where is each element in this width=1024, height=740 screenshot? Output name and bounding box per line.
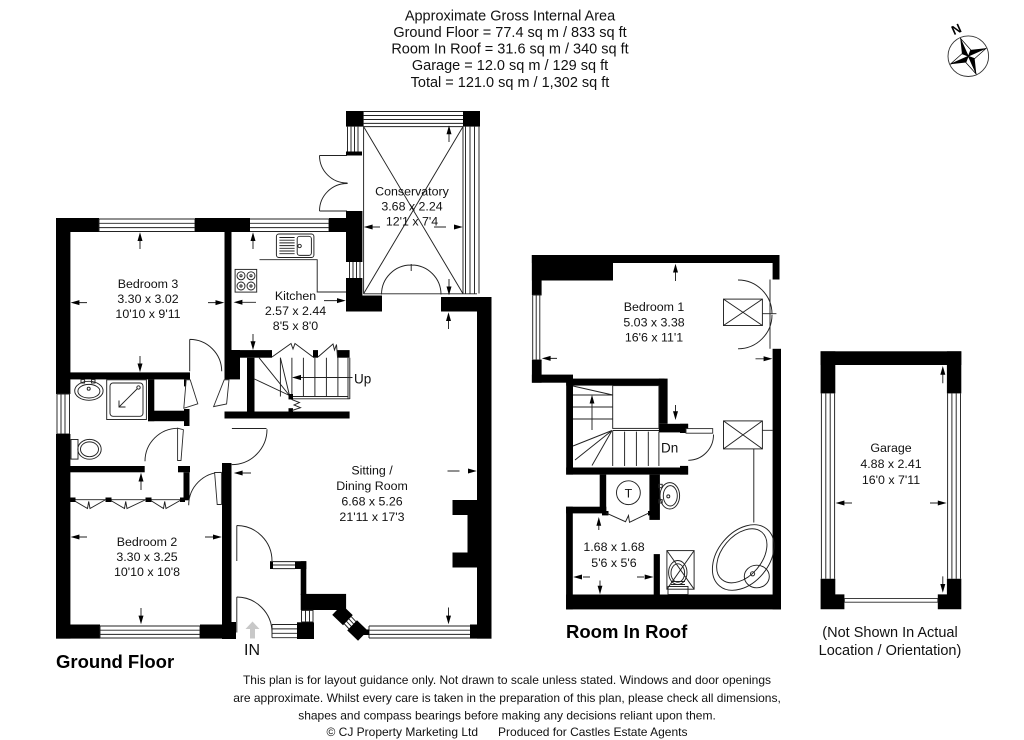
svg-text:6.68 x 5.26: 6.68 x 5.26 (341, 495, 402, 509)
svg-text:4.88 x 2.41: 4.88 x 2.41 (860, 457, 921, 471)
svg-text:12'1 x 7'4: 12'1 x 7'4 (386, 215, 438, 229)
svg-text:Ground Floor: Ground Floor (56, 651, 174, 672)
svg-text:3.68 x 2.24: 3.68 x 2.24 (381, 200, 442, 214)
svg-text:16'6 x 11'1: 16'6 x 11'1 (625, 331, 683, 345)
svg-text:T: T (625, 487, 633, 501)
svg-text:5.03 x 3.38: 5.03 x 3.38 (623, 316, 684, 330)
svg-text:21'11 x 17'3: 21'11 x 17'3 (339, 510, 404, 524)
svg-text:Garage: Garage (870, 441, 911, 455)
svg-text:IN: IN (244, 642, 260, 659)
svg-text:2.57 x 2.44: 2.57 x 2.44 (265, 304, 326, 318)
svg-text:8'5 x 8'0: 8'5 x 8'0 (273, 319, 318, 333)
svg-text:Sitting /: Sitting / (351, 464, 393, 478)
svg-text:Approximate Gross Internal Are: Approximate Gross Internal Area (405, 9, 616, 25)
svg-text:are approximate. Whilst every: are approximate. Whilst every care is ta… (233, 691, 781, 705)
svg-text:Room In Roof: Room In Roof (566, 621, 688, 642)
svg-text:Bedroom 2: Bedroom 2 (117, 535, 178, 549)
svg-text:Bedroom 1: Bedroom 1 (624, 300, 685, 314)
svg-text:Dn: Dn (661, 441, 678, 456)
svg-text:Up: Up (354, 372, 371, 387)
svg-text:10'10 x 10'8: 10'10 x 10'8 (114, 565, 180, 579)
svg-text:10'10 x 9'11: 10'10 x 9'11 (115, 307, 180, 321)
svg-text:Garage = 12.0 sq m / 129 sq ft: Garage = 12.0 sq m / 129 sq ft (412, 58, 608, 74)
svg-text:Bedroom 3: Bedroom 3 (118, 277, 179, 291)
svg-text:3.30 x 3.25: 3.30 x 3.25 (116, 550, 177, 564)
svg-text:16'0 x 7'11: 16'0 x 7'11 (862, 473, 920, 487)
svg-text:Conservatory: Conservatory (375, 185, 449, 199)
svg-text:This plan is for layout guidan: This plan is for layout guidance only. N… (243, 673, 771, 687)
svg-text:Room In Roof = 31.6 sq m / 340: Room In Roof = 31.6 sq m / 340 sq ft (391, 42, 628, 58)
svg-text:© CJ Property Marketing Ltd: © CJ Property Marketing Ltd Produced for… (326, 725, 687, 739)
svg-text:(Not Shown In Actual: (Not Shown In Actual (822, 625, 957, 641)
svg-text:Dining Room: Dining Room (336, 479, 408, 493)
svg-text:1.68 x 1.68: 1.68 x 1.68 (583, 540, 644, 554)
svg-text:shapes and compass bearings be: shapes and compass bearings before makin… (298, 709, 716, 723)
svg-text:Kitchen: Kitchen (275, 289, 316, 303)
svg-text:Location / Orientation): Location / Orientation) (819, 643, 962, 659)
svg-text:Ground Floor = 77.4 sq m / 833: Ground Floor = 77.4 sq m / 833 sq ft (393, 25, 626, 41)
svg-text:3.30 x 3.02: 3.30 x 3.02 (117, 292, 178, 306)
svg-text:5'6 x 5'6: 5'6 x 5'6 (591, 556, 636, 570)
svg-text:Total = 121.0 sq m / 1,302 sq: Total = 121.0 sq m / 1,302 sq ft (411, 75, 610, 91)
